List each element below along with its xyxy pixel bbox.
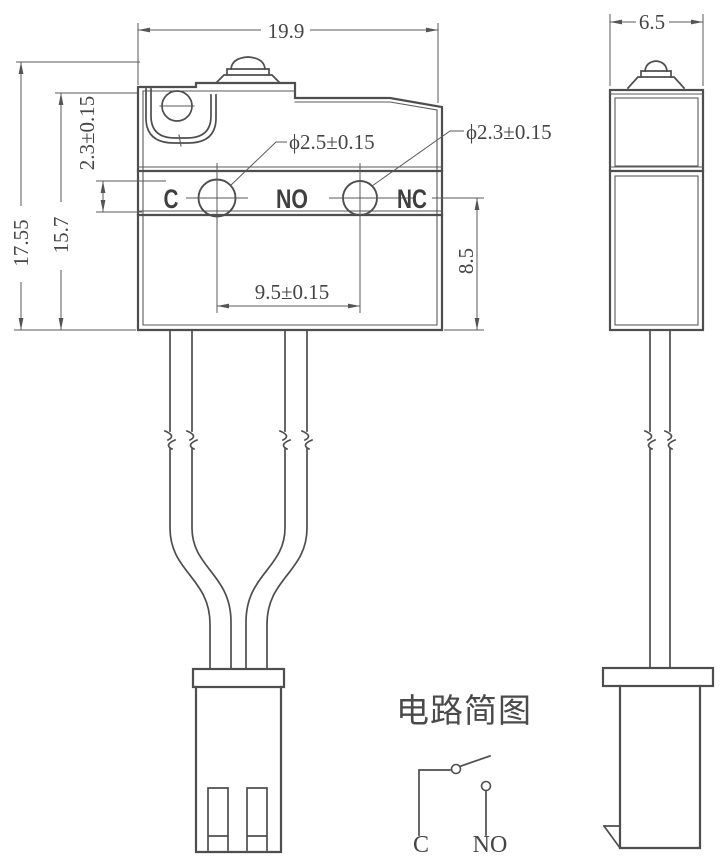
connector-slot-left bbox=[208, 788, 228, 850]
technical-drawing-page: C NO NC bbox=[0, 0, 720, 859]
connector-cap bbox=[193, 669, 284, 687]
dim-terminal-band: 2.3±0.15 bbox=[75, 96, 166, 212]
connector-slot-right bbox=[247, 788, 267, 850]
dim-label-body-height: 15.7 bbox=[49, 217, 73, 254]
dim-label-overall-width: 19.9 bbox=[268, 19, 305, 43]
side-upper-inner bbox=[615, 98, 698, 166]
dim-label-terminal-band: 2.3±0.15 bbox=[75, 96, 99, 171]
side-view bbox=[603, 61, 713, 848]
dim-label-hole-c: ϕ2.5±0.15 bbox=[289, 130, 375, 154]
connector-side-hook bbox=[604, 826, 620, 848]
terminal-label-no: NO bbox=[276, 184, 308, 214]
terminal-label-nc: NC bbox=[397, 184, 427, 214]
lever-tick bbox=[179, 135, 181, 146]
plunger-side bbox=[628, 61, 684, 88]
front-wires bbox=[165, 330, 312, 668]
circuit-title: 电路简图 bbox=[396, 693, 532, 730]
dim-overall-width: 19.9 bbox=[138, 19, 438, 103]
dim-lower-height: 8.5 bbox=[432, 198, 484, 330]
circuit-contact-no-icon bbox=[482, 782, 491, 791]
dim-label-lower-height: 8.5 bbox=[454, 248, 478, 274]
dim-side-width: 6.5 bbox=[610, 10, 703, 86]
dim-label-side-width: 6.5 bbox=[639, 10, 665, 34]
connector-side bbox=[603, 668, 713, 848]
dim-label-overall-height: 17.55 bbox=[9, 219, 33, 266]
dim-hole-nc: ϕ2.3±0.15 bbox=[372, 120, 552, 186]
dim-hole-pitch: 9.5±0.15 bbox=[217, 280, 360, 306]
side-lower-inner bbox=[615, 176, 698, 325]
terminal-label-c: C bbox=[164, 184, 179, 214]
connector-side-flange bbox=[603, 668, 713, 686]
dim-label-hole-nc: ϕ2.3±0.15 bbox=[466, 120, 552, 144]
connector-side-housing bbox=[620, 686, 700, 848]
side-body-outline bbox=[610, 90, 703, 330]
lever-channel-outer bbox=[146, 89, 216, 143]
circuit-common-lead bbox=[419, 770, 450, 835]
circuit-diagram: 电路简图 C NO bbox=[396, 693, 532, 858]
lever-channel-inner bbox=[151, 89, 211, 138]
circuit-label-no: NO bbox=[473, 832, 508, 858]
connector-front bbox=[193, 669, 284, 852]
dim-label-hole-pitch: 9.5±0.15 bbox=[255, 280, 330, 304]
circuit-label-c: C bbox=[413, 832, 429, 858]
circuit-contact-pivot-icon bbox=[452, 765, 461, 774]
plunger-front bbox=[216, 57, 280, 83]
side-wire bbox=[645, 330, 675, 668]
circuit-switch-lever bbox=[461, 756, 490, 766]
dim-hole-c: ϕ2.5±0.15 bbox=[230, 130, 375, 186]
front-view: C NO NC bbox=[138, 57, 442, 852]
microswitch-drawing: C NO NC bbox=[0, 0, 720, 859]
